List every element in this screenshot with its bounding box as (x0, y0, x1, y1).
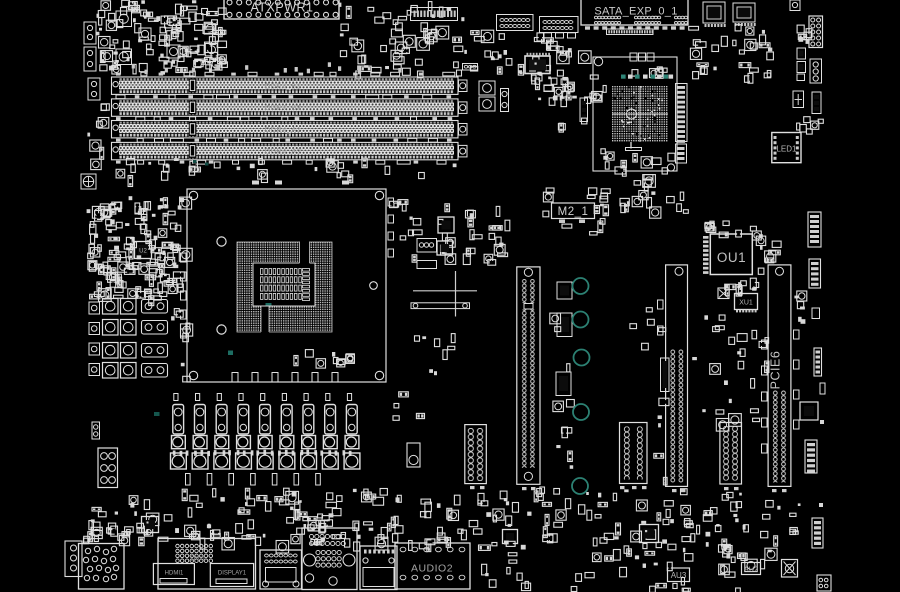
svg-text:OU1: OU1 (717, 250, 746, 265)
svg-text:DDR4_B2: DDR4_B2 (265, 103, 302, 112)
svg-text:U2: U2 (139, 249, 147, 255)
svg-text:DDR4_A2: DDR4_A2 (265, 147, 302, 156)
svg-text:AUDIO2: AUDIO2 (411, 563, 453, 575)
svg-text:HDMI1: HDMI1 (165, 571, 184, 577)
svg-text:M2_1: M2_1 (558, 206, 589, 218)
svg-text:SATA_EXP_0_1: SATA_EXP_0_1 (594, 6, 677, 18)
svg-text:XU1: XU1 (739, 300, 753, 307)
svg-text:AU2: AU2 (744, 565, 759, 574)
svg-text:DDR4_B1: DDR4_B1 (265, 81, 302, 90)
svg-text:ATXPWR1: ATXPWR1 (251, 1, 314, 15)
svg-text:LED1: LED1 (776, 145, 797, 154)
svg-text:PCIE6: PCIE6 (769, 351, 783, 390)
svg-text:DDR4_A1: DDR4_A1 (265, 125, 302, 134)
svg-text:DVI1: DVI1 (190, 556, 206, 563)
svg-text:DISPLAY1: DISPLAY1 (218, 571, 247, 577)
